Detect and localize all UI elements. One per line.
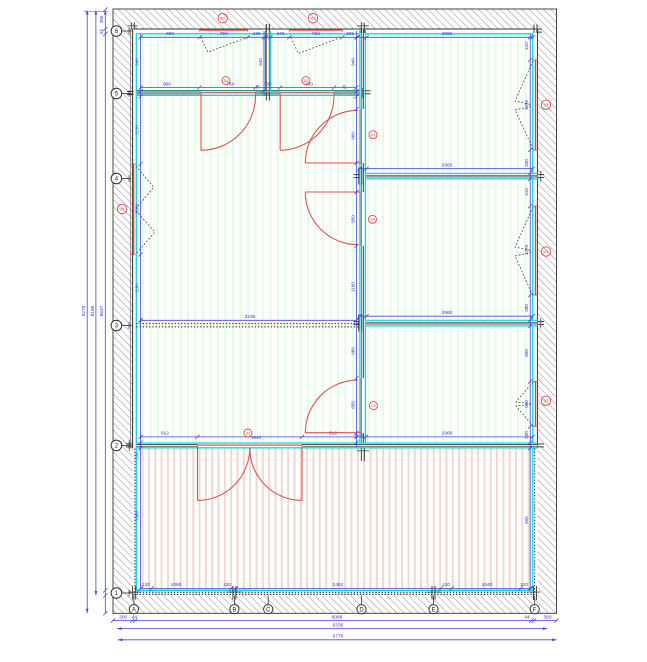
- svg-text:W2: W2: [310, 17, 315, 21]
- svg-text:120: 120: [520, 582, 528, 588]
- svg-text:300: 300: [119, 614, 127, 620]
- svg-text:1500: 1500: [134, 203, 139, 214]
- svg-text:C: C: [266, 607, 271, 613]
- svg-text:1060: 1060: [171, 582, 182, 588]
- svg-text:3236: 3236: [245, 314, 256, 320]
- svg-text:850: 850: [524, 349, 529, 357]
- svg-text:265: 265: [253, 31, 261, 37]
- svg-text:D4: D4: [370, 218, 375, 222]
- svg-text:380: 380: [524, 304, 529, 312]
- svg-text:390: 390: [543, 614, 551, 620]
- svg-text:D: D: [359, 607, 364, 613]
- svg-text:44: 44: [132, 614, 138, 620]
- svg-text:1130: 1130: [134, 125, 139, 135]
- svg-text:612: 612: [329, 431, 337, 437]
- svg-text:850: 850: [350, 215, 355, 223]
- svg-text:A: A: [132, 607, 136, 613]
- svg-text:605: 605: [524, 516, 529, 524]
- svg-text:400: 400: [524, 159, 529, 167]
- svg-text:18: 18: [360, 433, 365, 438]
- svg-text:2960: 2960: [442, 310, 453, 316]
- svg-text:2960: 2960: [442, 163, 453, 169]
- svg-text:940: 940: [134, 58, 139, 66]
- svg-text:245: 245: [276, 31, 284, 37]
- svg-text:B: B: [232, 607, 236, 613]
- svg-text:900: 900: [163, 81, 171, 87]
- svg-text:850: 850: [350, 401, 355, 409]
- svg-text:912: 912: [161, 431, 169, 437]
- svg-text:D4: D4: [224, 79, 229, 83]
- svg-text:120: 120: [142, 582, 150, 588]
- svg-text:410: 410: [524, 42, 529, 50]
- svg-text:120: 120: [442, 582, 450, 588]
- svg-text:2960: 2960: [442, 431, 453, 437]
- svg-text:1380: 1380: [134, 510, 139, 521]
- svg-text:1180: 1180: [134, 283, 139, 293]
- svg-text:W1: W1: [543, 250, 548, 254]
- svg-text:960: 960: [350, 132, 355, 140]
- svg-text:D4: D4: [304, 79, 309, 83]
- svg-text:410: 410: [524, 188, 529, 196]
- svg-text:960: 960: [350, 347, 355, 355]
- svg-text:W2: W2: [220, 17, 225, 21]
- svg-text:700: 700: [265, 81, 273, 86]
- svg-text:2462: 2462: [333, 582, 344, 588]
- svg-text:940: 940: [258, 58, 263, 66]
- svg-text:70: 70: [256, 84, 261, 89]
- svg-text:750: 750: [312, 31, 320, 37]
- svg-text:55: 55: [99, 29, 104, 35]
- svg-text:1370: 1370: [524, 244, 529, 255]
- svg-text:1040: 1040: [482, 582, 493, 588]
- svg-text:990: 990: [166, 31, 174, 37]
- svg-text:1390: 1390: [524, 99, 529, 110]
- svg-text:120: 120: [134, 452, 139, 460]
- svg-text:6336: 6336: [333, 622, 344, 628]
- svg-text:6776: 6776: [333, 634, 344, 640]
- svg-text:D3: D3: [371, 404, 376, 408]
- svg-text:120: 120: [223, 582, 231, 588]
- svg-text:W1: W1: [119, 207, 124, 211]
- svg-text:750: 750: [220, 31, 228, 37]
- svg-text:E: E: [431, 607, 435, 613]
- svg-text:940: 940: [350, 58, 355, 66]
- svg-text:1150: 1150: [350, 282, 355, 292]
- svg-text:W1: W1: [543, 103, 548, 107]
- svg-text:205: 205: [346, 31, 354, 37]
- svg-text:690: 690: [524, 400, 529, 408]
- svg-text:D2: D2: [246, 431, 251, 435]
- svg-text:44: 44: [524, 614, 530, 620]
- svg-text:2960: 2960: [442, 31, 453, 37]
- svg-text:D1: D1: [371, 133, 376, 137]
- svg-text:1640: 1640: [251, 435, 262, 440]
- svg-text:W2: W2: [543, 399, 548, 403]
- svg-text:9275: 9275: [81, 305, 87, 316]
- svg-text:8637: 8637: [99, 305, 105, 316]
- svg-text:300: 300: [99, 15, 104, 23]
- svg-text:6088: 6088: [332, 614, 343, 620]
- svg-text:250: 250: [524, 431, 529, 439]
- svg-text:F: F: [533, 607, 537, 613]
- svg-text:20: 20: [342, 84, 347, 89]
- svg-text:8185: 8185: [90, 305, 96, 316]
